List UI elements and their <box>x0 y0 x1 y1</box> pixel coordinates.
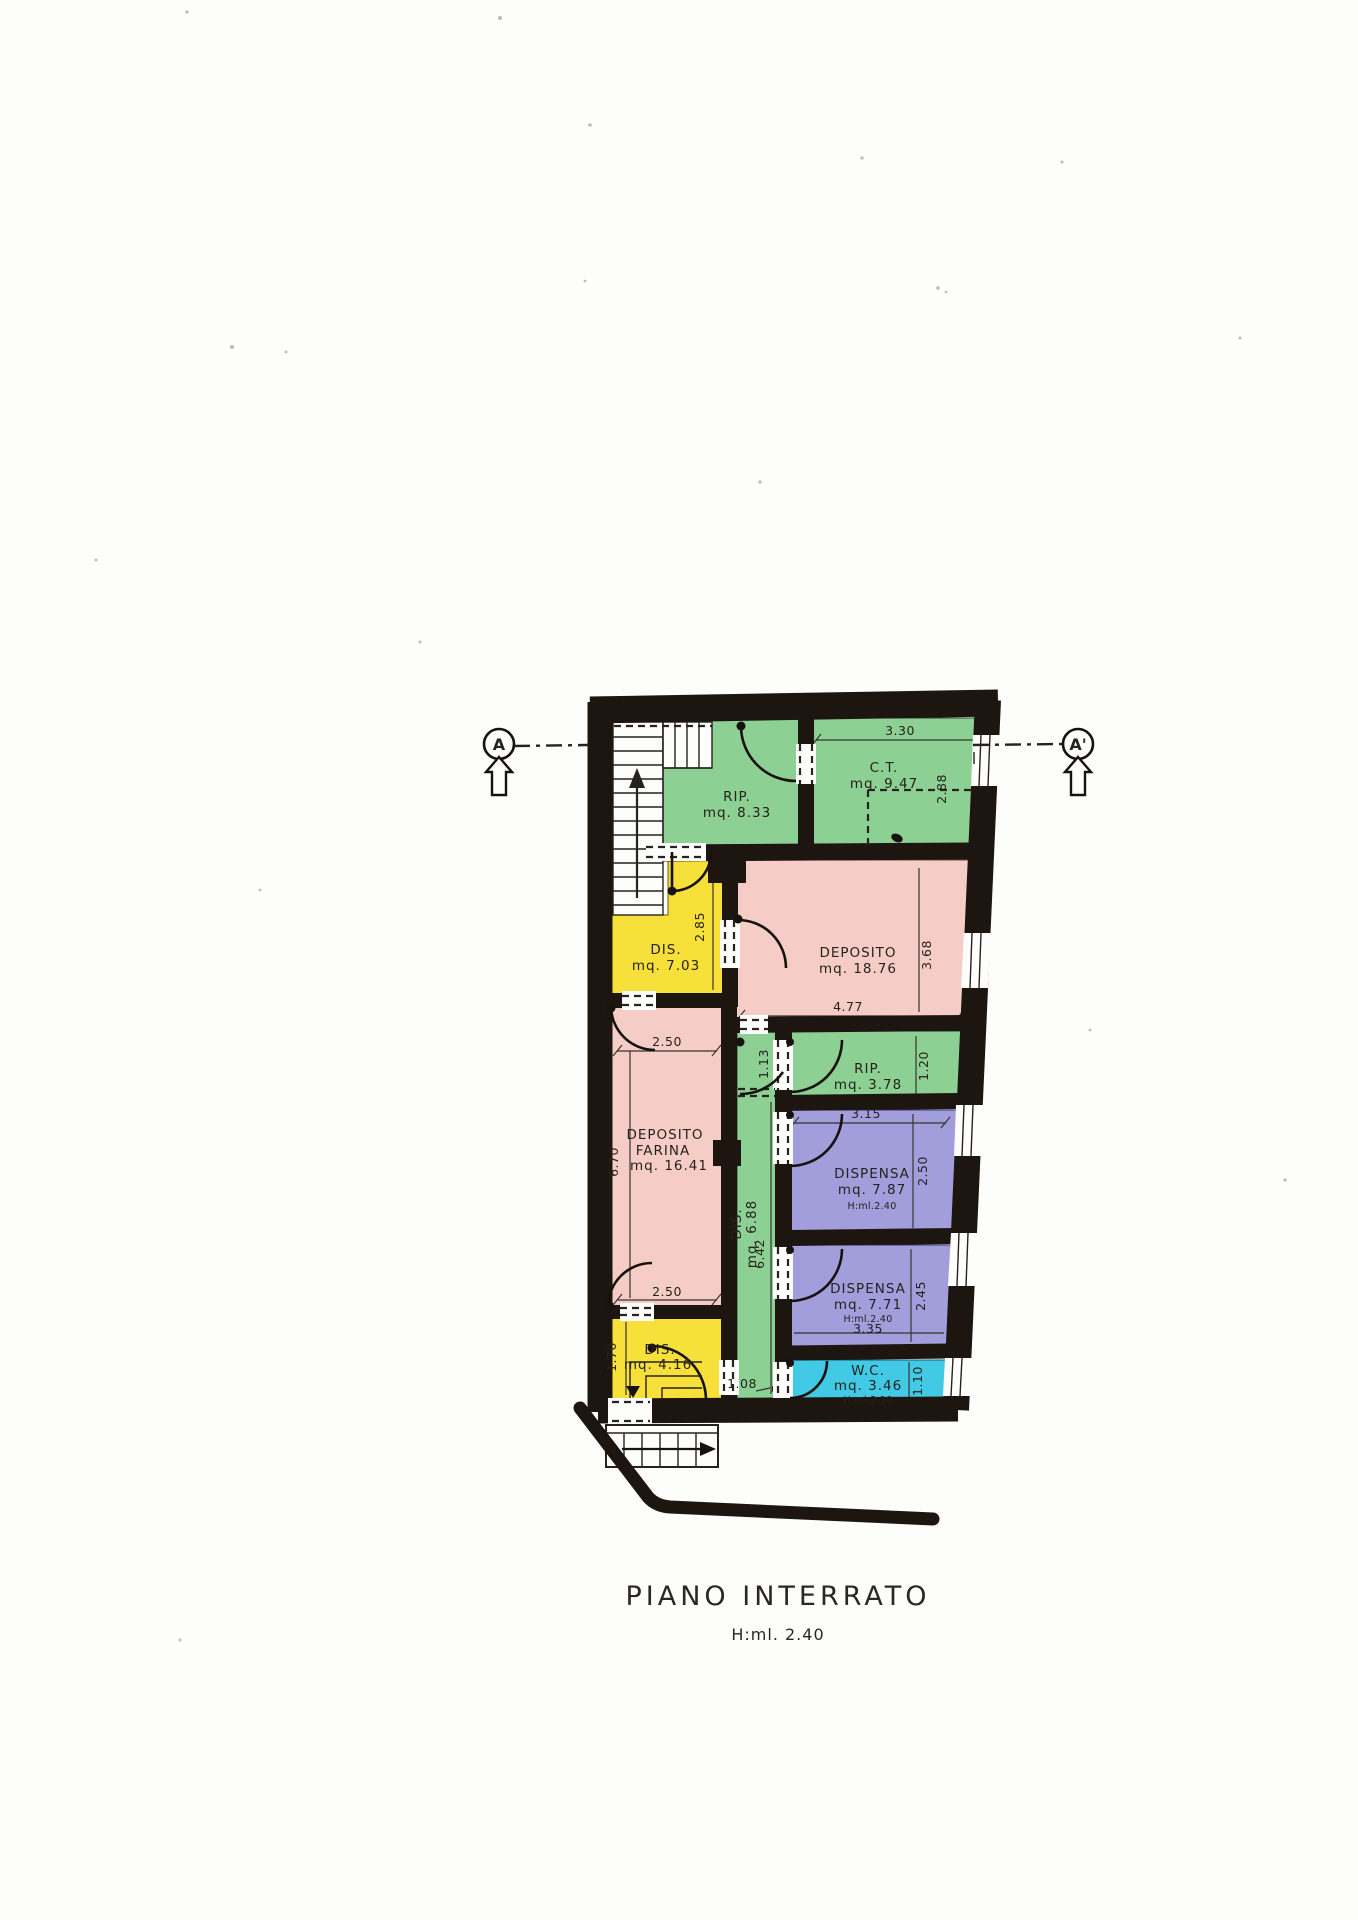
section-arrow-a <box>486 757 512 795</box>
wall-top <box>590 703 998 710</box>
room-area-deposito: mq. 18.76 <box>819 961 897 977</box>
dim-dispensa2-width: 3.35 <box>853 1321 883 1336</box>
room-label-dispensa1: DISPENSA <box>834 1166 910 1182</box>
room-label-dispensa2: DISPENSA <box>830 1281 906 1297</box>
room-label-corridor: DIS. <box>729 1208 745 1239</box>
room-area-dis1: mq. 7.03 <box>632 958 700 974</box>
room-label-deposito: DEPOSITO <box>819 945 896 961</box>
dim-dispensa1-width: 3.15 <box>851 1106 881 1121</box>
section-marker-a-label: A <box>493 735 506 754</box>
dim-corridor-height: 6.42 <box>752 1239 767 1269</box>
dim-dispensa1-height: 2.50 <box>915 1156 930 1186</box>
room-label-farina-2: FARINA <box>636 1143 690 1159</box>
room-area-dispensa1: mq. 7.87 <box>838 1182 906 1198</box>
room-area-rip1: mq. 8.33 <box>703 805 771 821</box>
dim-farina-width-bottom: 2.50 <box>652 1284 682 1299</box>
dim-ct-width: 3.30 <box>885 723 915 738</box>
dim-dis1-height: 2.85 <box>692 912 707 942</box>
room-area-dis2: mq. 4.16 <box>624 1357 692 1373</box>
room-area-wc: mq. 3.46 <box>834 1378 902 1394</box>
section-arrow-a1 <box>1065 757 1091 795</box>
dim-dispensa2-height: 2.45 <box>913 1281 928 1311</box>
section-marker-a1-label: A' <box>1069 735 1086 754</box>
dim-ct-height: 2.88 <box>934 774 949 804</box>
plan-title: PIANO INTERRATO <box>625 1581 930 1612</box>
dim-rip2-height: 1.20 <box>916 1051 931 1081</box>
room-height-dispensa1: H:ml.2.40 <box>847 1201 896 1212</box>
dim-farina-width-top: 2.50 <box>652 1034 682 1049</box>
room-label-dis2: DIS. <box>644 1342 675 1358</box>
room-area-farina: mq. 16.41 <box>630 1158 708 1174</box>
floor-plan-canvas: A A' RIP. mq. 8.33 C.T. mq. 9.47 DIS. mq… <box>0 0 1358 1920</box>
dim-corridor-top-width: 1.13 <box>756 1049 771 1079</box>
room-label-ct: C.T. <box>870 760 899 776</box>
room-label-farina-1: DEPOSITO <box>626 1127 703 1143</box>
dim-dis2-height: 1.70 <box>604 1342 619 1372</box>
dim-deposito-height: 3.68 <box>919 940 934 970</box>
room-area-ct: mq. 9.47 <box>850 776 918 792</box>
external-stairs <box>580 1408 933 1519</box>
dim-wc-height: 1.10 <box>910 1366 925 1396</box>
room-height-wc: H:ml.2.10 <box>843 1395 892 1406</box>
room-label-dis1: DIS. <box>650 942 681 958</box>
room-area-dispensa2: mq. 7.71 <box>834 1297 902 1313</box>
footer: PIANO INTERRATO H:ml. 2.40 <box>625 1581 930 1644</box>
room-label-rip1: RIP. <box>723 789 751 805</box>
room-deposito <box>736 860 971 1020</box>
plan-height-note: H:ml. 2.40 <box>731 1625 824 1644</box>
dim-corridor-bottom-width: 1.08 <box>727 1376 757 1391</box>
scanned-floor-plan-page: { "footer": { "title": "PIANO INTERRATO"… <box>0 0 1358 1920</box>
room-area-rip2: mq. 3.78 <box>834 1077 902 1093</box>
room-label-wc: W.C. <box>851 1363 885 1379</box>
room-label-rip2: RIP. <box>854 1061 882 1077</box>
dim-farina-height: 6.70 <box>606 1147 621 1177</box>
dim-deposito-width: 4.77 <box>833 999 863 1014</box>
